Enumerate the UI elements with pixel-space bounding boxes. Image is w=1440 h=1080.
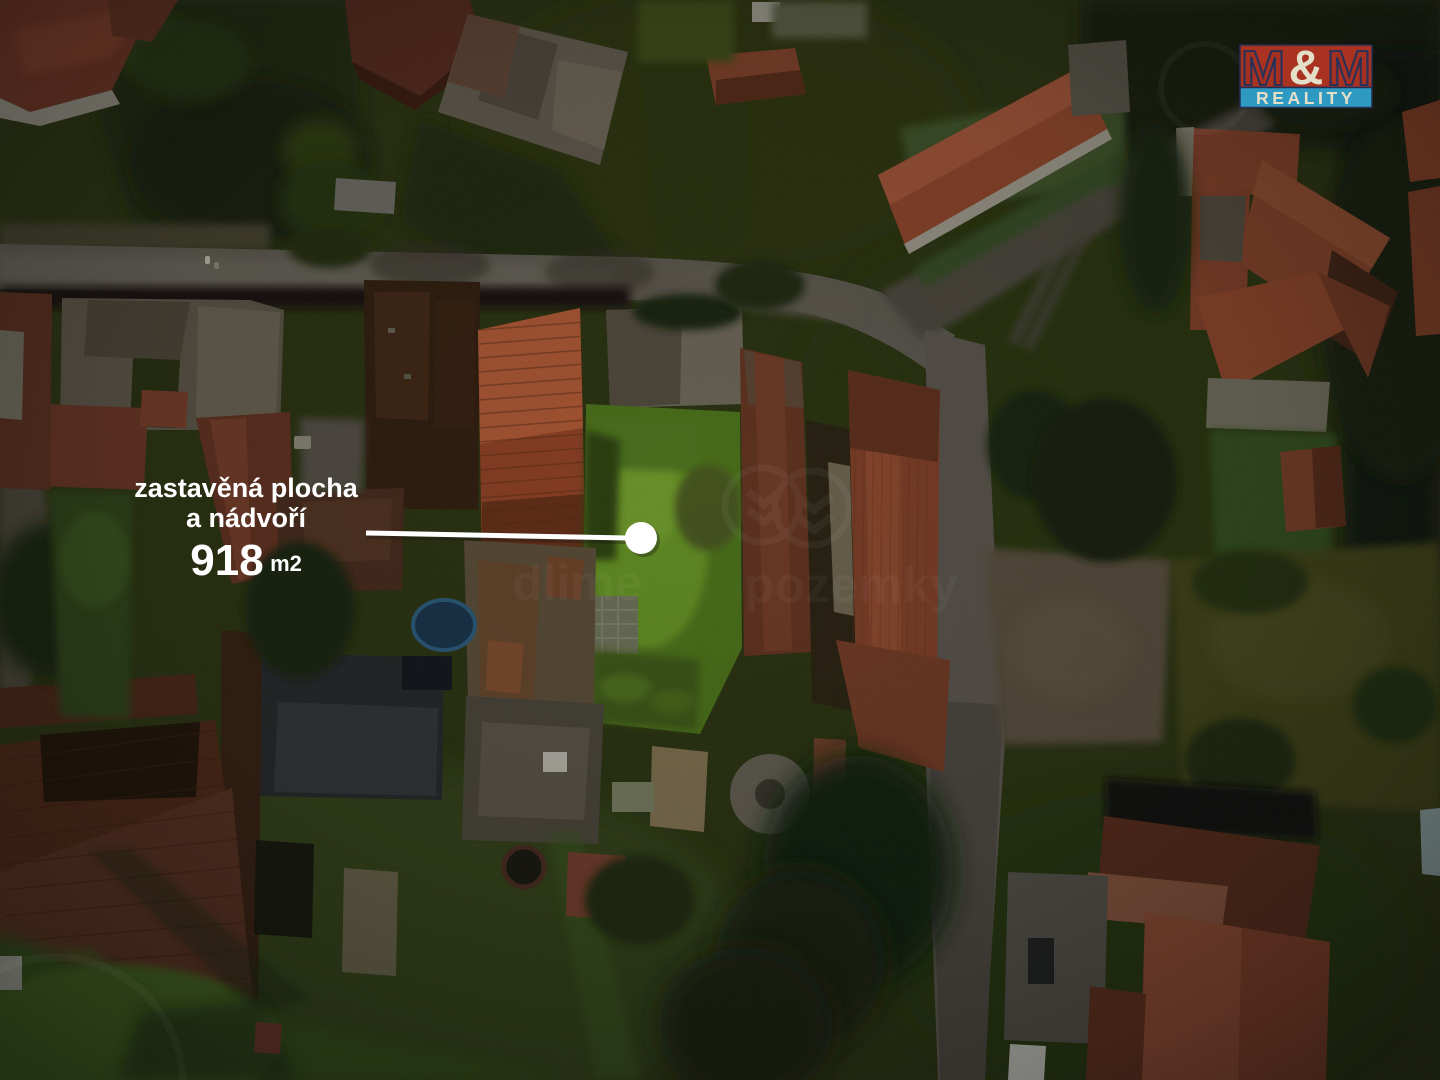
svg-text:m2: m2 xyxy=(270,551,302,576)
svg-text:dlime: dlime xyxy=(512,555,643,611)
svg-text:a nádvoří: a nádvoří xyxy=(186,503,308,533)
svg-text:pozemky: pozemky xyxy=(744,557,958,613)
svg-text:zastavěná plocha: zastavěná plocha xyxy=(134,473,359,503)
svg-text:918: 918 xyxy=(190,536,263,585)
svg-text:REALITY: REALITY xyxy=(1256,88,1356,108)
